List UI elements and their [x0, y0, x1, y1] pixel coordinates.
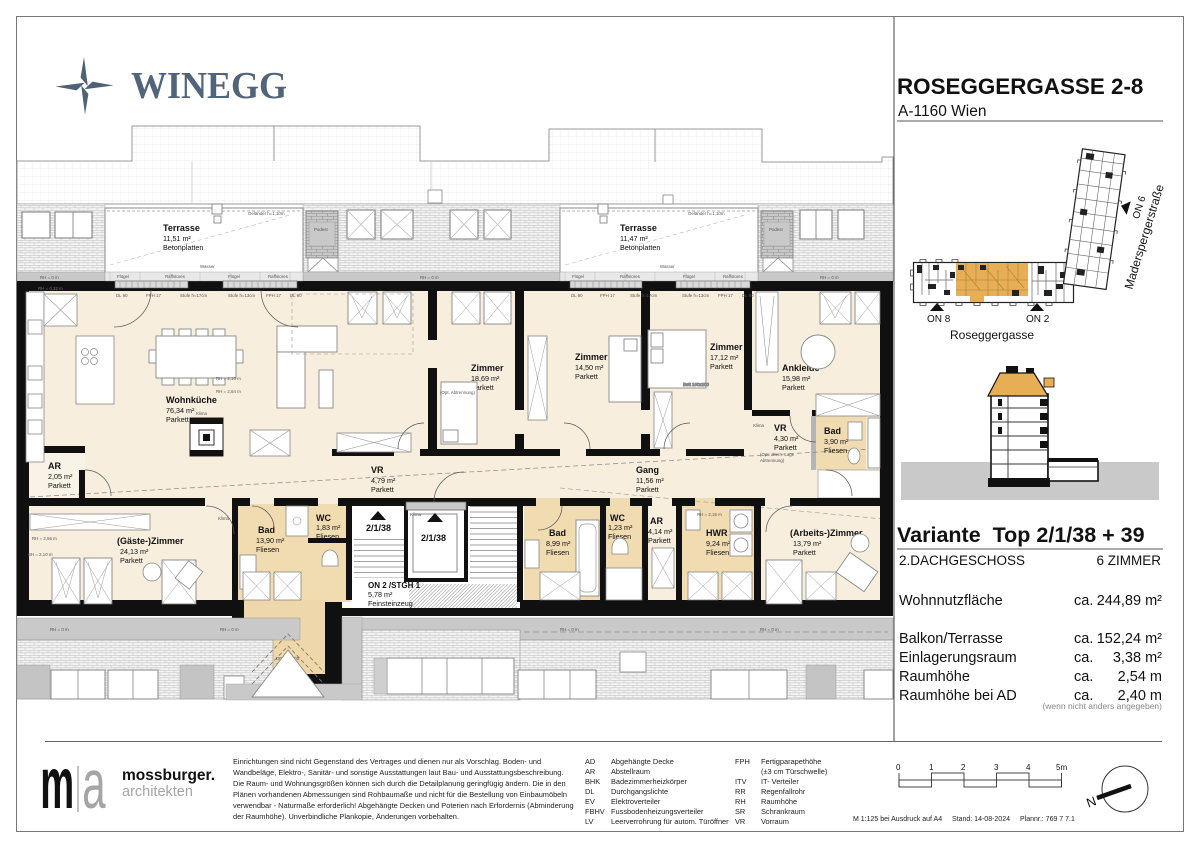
- svg-text:Leerverrohrung für autom. Türö: Leerverrohrung für autom. Türöffner: [611, 817, 729, 826]
- svg-text:Parkett: Parkett: [48, 481, 71, 490]
- svg-text:AR: AR: [650, 516, 663, 526]
- svg-text:Zimmer: Zimmer: [710, 342, 743, 352]
- svg-text:RH = 0,32 m: RH = 0,32 m: [38, 286, 63, 291]
- svg-text:mossburger.: mossburger.: [122, 767, 215, 784]
- svg-text:Flügel: Flügel: [683, 274, 695, 279]
- svg-text:Wasser: Wasser: [200, 264, 215, 269]
- svg-text:Klima: Klima: [410, 512, 422, 517]
- svg-text:Wohnnutzfläche: Wohnnutzfläche: [899, 593, 1003, 609]
- svg-text:ON 2 /STGH 1: ON 2 /STGH 1: [368, 581, 421, 590]
- svg-text:Schrankraum: Schrankraum: [761, 807, 805, 816]
- svg-text:2: 2: [961, 763, 966, 772]
- svg-text:RH = 0 m: RH = 0 m: [40, 275, 59, 280]
- svg-text:Parkett: Parkett: [636, 485, 659, 494]
- svg-text:ca.: ca.: [1074, 650, 1093, 666]
- svg-text:RH = 0 m: RH = 0 m: [420, 275, 439, 280]
- svg-text:1,83 m²: 1,83 m²: [316, 523, 341, 532]
- svg-text:M 1:125 bei Ausdruck auf A4: M 1:125 bei Ausdruck auf A4: [853, 816, 942, 823]
- svg-text:Geländer h=1,10m: Geländer h=1,10m: [248, 211, 285, 216]
- svg-text:RH = 2,64 m: RH = 2,64 m: [216, 389, 241, 394]
- svg-text:13,79 m²: 13,79 m²: [793, 539, 822, 548]
- svg-text:(Opt: altern. Lage: (Opt: altern. Lage: [760, 452, 795, 457]
- svg-text:Geländer h=1,10m: Geländer h=1,10m: [688, 211, 725, 216]
- svg-text:8,99 m²: 8,99 m²: [546, 539, 571, 548]
- svg-text:Raumhöhe: Raumhöhe: [899, 669, 970, 685]
- svg-text:Parkett: Parkett: [575, 372, 598, 381]
- svg-text:VR: VR: [371, 465, 384, 475]
- svg-text:ON 2: ON 2: [1026, 314, 1050, 325]
- svg-text:Klima: Klima: [196, 411, 208, 416]
- svg-text:VR: VR: [774, 423, 787, 433]
- svg-text:Abtrennung): Abtrennung): [760, 458, 785, 463]
- svg-text:3,38 m²: 3,38 m²: [1113, 650, 1162, 666]
- svg-text:Parkett: Parkett: [371, 485, 394, 494]
- svg-text:RH = 0 m: RH = 0 m: [220, 627, 239, 632]
- svg-text:Flügel: Flügel: [117, 274, 129, 279]
- svg-text:5,78 m²: 5,78 m²: [368, 590, 393, 599]
- svg-text:24,13 m²: 24,13 m²: [120, 547, 149, 556]
- svg-text:FPH 17: FPH 17: [718, 293, 733, 298]
- svg-text:6 ZIMMER: 6 ZIMMER: [1096, 553, 1161, 568]
- svg-text:RH = 2,56 m: RH = 2,56 m: [32, 536, 57, 541]
- svg-text:3: 3: [994, 763, 999, 772]
- svg-text:Einrichtungen sind nicht Gegen: Einrichtungen sind nicht Gegenstand des …: [233, 757, 541, 766]
- svg-text:EV: EV: [585, 797, 595, 806]
- svg-text:13,90 m²: 13,90 m²: [256, 536, 285, 545]
- svg-text:Regenfallrohr: Regenfallrohr: [761, 787, 806, 796]
- svg-text:Balkon/Terrasse: Balkon/Terrasse: [899, 631, 1003, 647]
- svg-text:Fliesen: Fliesen: [824, 446, 847, 455]
- svg-text:WC: WC: [610, 513, 625, 523]
- svg-text:ROSEGGERGASSE 2-8: ROSEGGERGASSE 2-8: [897, 74, 1143, 99]
- svg-text:152,24 m²: 152,24 m²: [1097, 631, 1162, 647]
- svg-text:Die Raum- und Wohnungsgrößen k: Die Raum- und Wohnungsgrößen können sich…: [233, 779, 566, 788]
- svg-text:m: m: [40, 744, 74, 824]
- svg-text:2/1/38: 2/1/38: [366, 523, 391, 533]
- svg-text:AR: AR: [48, 461, 61, 471]
- svg-text:FPH 17: FPH 17: [600, 293, 615, 298]
- svg-text:Wohnküche: Wohnküche: [166, 395, 217, 405]
- svg-text:ca.: ca.: [1074, 631, 1093, 647]
- svg-text:WINEGG: WINEGG: [131, 65, 287, 107]
- svg-text:Parkett: Parkett: [120, 556, 143, 565]
- svg-text:3,90 m²: 3,90 m²: [824, 437, 849, 446]
- svg-text:FPH: FPH: [735, 757, 750, 766]
- svg-text:FBHV: FBHV: [585, 807, 605, 816]
- svg-text:Bett 160x200: Bett 160x200: [683, 382, 709, 387]
- svg-text:Parkett: Parkett: [782, 383, 805, 392]
- svg-text:Zimmer: Zimmer: [575, 352, 608, 362]
- svg-text:Wandbeläge, Elektro-, Sanitär-: Wandbeläge, Elektro-, Sanitär- und sonst…: [233, 768, 563, 777]
- svg-text:4: 4: [1026, 763, 1031, 772]
- svg-text:RH = 0 m: RH = 0 m: [50, 627, 69, 632]
- svg-text:a: a: [82, 746, 106, 824]
- svg-text:Roseggergasse: Roseggergasse: [950, 328, 1034, 342]
- svg-text:AR: AR: [585, 767, 595, 776]
- svg-text:Abgehängte Decke: Abgehängte Decke: [611, 757, 674, 766]
- svg-text:RH = 2,10 m: RH = 2,10 m: [216, 376, 241, 381]
- svg-text:RH = 2,15 m: RH = 2,15 m: [697, 512, 722, 517]
- svg-text:4,79 m²: 4,79 m²: [371, 476, 396, 485]
- svg-text:Podest: Podest: [769, 227, 783, 232]
- svg-text:Podest: Podest: [314, 227, 328, 232]
- svg-text:Parkett: Parkett: [710, 362, 733, 371]
- svg-text:Feinsteinzeug: Feinsteinzeug: [368, 599, 413, 608]
- svg-text:Terrasse: Terrasse: [163, 223, 200, 233]
- svg-text:1,23 m²: 1,23 m²: [608, 523, 633, 532]
- svg-text:Parkett: Parkett: [774, 443, 797, 452]
- svg-text:SR: SR: [735, 807, 745, 816]
- svg-text:RH: RH: [735, 797, 746, 806]
- svg-text:Raumhöhe: Raumhöhe: [761, 797, 797, 806]
- svg-text:Fertigparapethöhe: Fertigparapethöhe: [761, 757, 821, 766]
- svg-text:Stand: 14-08-2024: Stand: 14-08-2024: [952, 816, 1010, 823]
- svg-text:Klima: Klima: [218, 516, 230, 521]
- svg-text:0: 0: [896, 763, 901, 772]
- svg-text:BHK: BHK: [585, 777, 600, 786]
- svg-text:11,47 m²: 11,47 m²: [620, 234, 648, 243]
- svg-text:ca.: ca.: [1074, 669, 1093, 685]
- svg-text:RR: RR: [735, 787, 746, 796]
- svg-text:HWR: HWR: [706, 528, 728, 538]
- svg-text:ON 8: ON 8: [927, 314, 951, 325]
- svg-text:11,51 m²: 11,51 m²: [163, 234, 191, 243]
- svg-text:Bad: Bad: [549, 528, 566, 538]
- svg-text:BH = 2,10 m: BH = 2,10 m: [28, 552, 53, 557]
- svg-text:Flügel: Flügel: [228, 274, 240, 279]
- svg-text:(Opt. Abtrennung): (Opt. Abtrennung): [440, 390, 475, 395]
- svg-text:FPH 17: FPH 17: [146, 293, 161, 298]
- svg-text:(Arbeits-)Zimmer: (Arbeits-)Zimmer: [790, 528, 863, 538]
- svg-text:11,56 m²: 11,56 m²: [636, 476, 664, 485]
- svg-text:VR: VR: [735, 817, 745, 826]
- svg-text:2,54 m: 2,54 m: [1118, 669, 1162, 685]
- svg-text:244,89 m²: 244,89 m²: [1097, 593, 1162, 609]
- svg-text:Raffstores: Raffstores: [620, 274, 641, 279]
- svg-text:RH = 0 m: RH = 0 m: [760, 627, 779, 632]
- svg-text:Raffstores: Raffstores: [723, 274, 744, 279]
- svg-text:verwendbar - Naturmaße erforde: verwendbar - Naturmaße erforderlich! Abg…: [233, 801, 574, 810]
- svg-text:Betonplatten: Betonplatten: [163, 243, 203, 252]
- svg-text:Badezimmerheizkörper: Badezimmerheizkörper: [611, 777, 688, 786]
- svg-text:Bad: Bad: [824, 426, 841, 436]
- svg-text:Parkett: Parkett: [793, 548, 816, 557]
- svg-text:A-1160 Wien: A-1160 Wien: [898, 103, 986, 120]
- svg-text:Stufe h=13cm: Stufe h=13cm: [682, 293, 710, 298]
- svg-text:der Raumhöhe). Unverbindliche: der Raumhöhe). Unverbindliche Plankopie,…: [233, 812, 459, 821]
- svg-text:Gang: Gang: [636, 465, 659, 475]
- svg-text:DL 90: DL 90: [742, 293, 754, 298]
- svg-text:Bad: Bad: [258, 525, 275, 535]
- svg-text:5m: 5m: [1056, 763, 1067, 772]
- svg-text:AD: AD: [585, 757, 595, 766]
- svg-text:LV: LV: [585, 817, 594, 826]
- svg-text:Stufe h=17cm: Stufe h=17cm: [180, 293, 208, 298]
- svg-text:DL 90: DL 90: [571, 293, 583, 298]
- svg-text:Terrasse: Terrasse: [620, 223, 657, 233]
- svg-text:Stufe h=13cm: Stufe h=13cm: [228, 293, 256, 298]
- svg-text:(wenn nicht anders angegeben): (wenn nicht anders angegeben): [1042, 701, 1162, 711]
- svg-text:4,14 m²: 4,14 m²: [648, 527, 673, 536]
- svg-text:Fussbodenheizungsverteiler: Fussbodenheizungsverteiler: [611, 807, 704, 816]
- svg-text:RH = 0 m: RH = 0 m: [560, 627, 579, 632]
- svg-text:2/1/38: 2/1/38: [421, 533, 446, 543]
- svg-text:2,05 m²: 2,05 m²: [48, 472, 73, 481]
- svg-text:1: 1: [929, 763, 934, 772]
- svg-text:Klima: Klima: [753, 423, 765, 428]
- svg-text:Zimmer: Zimmer: [471, 363, 504, 373]
- svg-text:Fliesen: Fliesen: [706, 548, 729, 557]
- svg-text:(Gäste-)Zimmer: (Gäste-)Zimmer: [117, 536, 184, 546]
- svg-text:Flügel: Flügel: [572, 274, 584, 279]
- svg-text:WC: WC: [316, 513, 331, 523]
- svg-text:ITV: ITV: [735, 777, 747, 786]
- svg-text:DL 90: DL 90: [116, 293, 128, 298]
- svg-text:Abstellraum: Abstellraum: [611, 767, 650, 776]
- svg-text:Fliesen: Fliesen: [316, 532, 339, 541]
- svg-text:2.DACHGESCHOSS: 2.DACHGESCHOSS: [899, 553, 1025, 568]
- svg-text:Einlagerungsraum: Einlagerungsraum: [899, 650, 1017, 666]
- svg-text:RH = 0 m: RH = 0 m: [820, 275, 839, 280]
- svg-text:Parkett: Parkett: [166, 415, 189, 424]
- svg-text:Parkett: Parkett: [648, 536, 671, 545]
- svg-text:Durchgangslichte: Durchgangslichte: [611, 787, 668, 796]
- svg-text:4,30 m²: 4,30 m²: [774, 434, 799, 443]
- svg-text:(±3 cm Türschwelle): (±3 cm Türschwelle): [761, 767, 827, 776]
- svg-text:Fliesen: Fliesen: [256, 545, 279, 554]
- svg-text:Raffstores: Raffstores: [268, 274, 289, 279]
- svg-text:DL: DL: [585, 787, 594, 796]
- svg-text:ca.: ca.: [1074, 593, 1093, 609]
- svg-text:Vorraum: Vorraum: [761, 817, 789, 826]
- svg-text:Plänen vorhandenen Abmessungen: Plänen vorhandenen Abmessungen sind Rohb…: [233, 790, 567, 799]
- svg-text:Betonplatten: Betonplatten: [620, 243, 660, 252]
- svg-text:Raumhöhe bei AD: Raumhöhe bei AD: [899, 688, 1017, 704]
- svg-text:FPH 17: FPH 17: [266, 293, 281, 298]
- svg-text:Raffstores: Raffstores: [165, 274, 186, 279]
- svg-text:Wasser: Wasser: [660, 264, 675, 269]
- svg-text:15,98 m²: 15,98 m²: [782, 374, 811, 383]
- svg-text:76,34 m²: 76,34 m²: [166, 406, 195, 415]
- svg-text:architekten: architekten: [122, 784, 193, 800]
- svg-text:Variante Top 2/1/38 + 39: Variante Top 2/1/38 + 39: [897, 523, 1145, 547]
- svg-text:Plannr.: 769 7 7.1: Plannr.: 769 7 7.1: [1020, 816, 1075, 823]
- svg-text:Fliesen: Fliesen: [546, 548, 569, 557]
- svg-text:14,50 m²: 14,50 m²: [575, 363, 604, 372]
- svg-text:9,24 m²: 9,24 m²: [706, 539, 731, 548]
- svg-text:Elektroverteiler: Elektroverteiler: [611, 797, 661, 806]
- svg-text:17,12 m²: 17,12 m²: [710, 353, 739, 362]
- svg-text:Stufe h=17cm: Stufe h=17cm: [630, 293, 658, 298]
- svg-text:IT- Verteiler: IT- Verteiler: [761, 777, 799, 786]
